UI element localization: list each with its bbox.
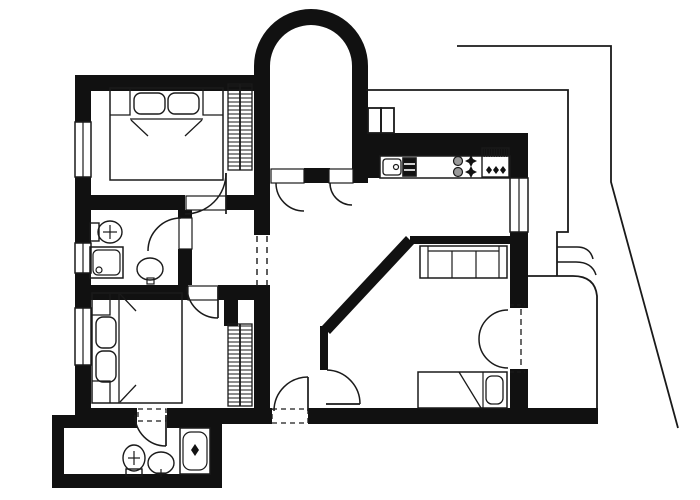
doorframe-bay-right: [329, 169, 353, 183]
bed1-nightstand-left: [110, 88, 130, 115]
wall-bottom-c: [308, 408, 598, 424]
burner-3: [465, 155, 477, 167]
bay-arch-wall: [254, 9, 368, 66]
annex-threshold: [138, 409, 166, 421]
bed2-fold-bottom: [120, 385, 136, 402]
terrace-outline: [528, 276, 597, 408]
bed2-nightstand-bottom: [92, 381, 110, 403]
bed1-fold-right: [185, 120, 202, 136]
wall-right-upper: [510, 133, 528, 178]
wall-living-top: [410, 236, 510, 244]
wall-kitchen-left-stub: [368, 156, 380, 178]
bay-wall-right: [352, 66, 368, 183]
kitchen-sink-drain: [394, 165, 399, 170]
sink1-tap: [147, 278, 154, 284]
annex-wall-top-right: [167, 415, 210, 428]
bed1-outline: [110, 88, 223, 180]
bed1-pillow-right: [168, 93, 199, 114]
doorframe-bathroom: [179, 218, 192, 249]
wall-bathroom-bottom-right: [218, 285, 270, 300]
annex-wall-right: [210, 418, 222, 488]
wall-bedroom1-bottom-right: [226, 195, 270, 210]
wall-right-middle: [510, 232, 528, 308]
door-entry-swing: [274, 377, 308, 411]
floor-plan-drawing: [0, 0, 700, 500]
door-living-swing: [327, 370, 360, 404]
shower-inner: [93, 250, 120, 275]
floor-plan: [0, 0, 700, 500]
wall-hall-lower: [254, 288, 270, 408]
terrace-step-2: [557, 262, 596, 275]
wall-diagonal: [322, 236, 414, 334]
kitchen-unit-diamond-3: [500, 166, 506, 174]
doorframe-bedroom2: [188, 286, 218, 300]
bathtub-drain: [191, 444, 199, 456]
bay-wall-left: [254, 66, 270, 183]
shaft-1: [368, 108, 381, 133]
burner-2: [454, 168, 463, 177]
shower-drain: [96, 267, 102, 273]
bed2-pillow-top: [96, 317, 116, 348]
bed1-fold-left: [131, 120, 148, 136]
annex-wall-top-left: [52, 415, 137, 428]
entry-threshold: [272, 409, 308, 423]
door-balcony-swing: [479, 310, 508, 368]
bed2-pillow-bottom: [96, 351, 116, 382]
door-bay-right-swing: [330, 183, 352, 205]
bay-bottom-stub: [304, 168, 330, 183]
kitchen-unit-diamond-1: [486, 166, 492, 174]
door-bathroom-swing: [148, 218, 181, 251]
door-bay-left-swing: [276, 183, 304, 211]
bed3-blanket-fold: [459, 372, 481, 408]
burner-4: [465, 166, 477, 178]
wall-bath-divider-bottom: [178, 249, 192, 285]
kitchen-unit-diamond-2: [493, 166, 499, 174]
sink1-basin: [137, 258, 163, 280]
wall-hall-living-stub: [320, 326, 328, 370]
shaft-2: [381, 108, 394, 133]
bed1-nightstand-right: [203, 88, 223, 115]
wall-bedroom2-right-stub: [224, 300, 238, 326]
terrace-step-1: [557, 247, 593, 259]
kitchen-stove: [403, 158, 416, 176]
doorframe-bay-left: [271, 169, 304, 183]
wall-bedroom1-bottom-left: [75, 195, 185, 210]
bed3-pillow: [486, 376, 503, 404]
burner-1: [454, 157, 463, 166]
bed1-pillow-left: [134, 93, 165, 114]
